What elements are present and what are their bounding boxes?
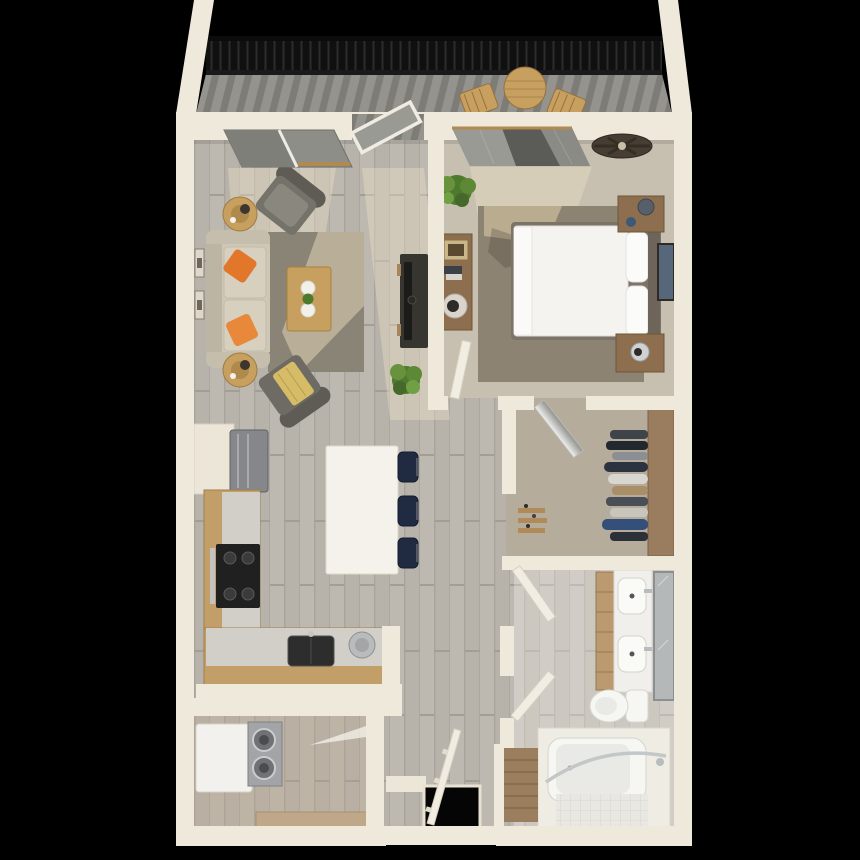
- toilet-seat: [595, 697, 617, 715]
- tub-shower: [538, 728, 670, 832]
- table-plant: [303, 294, 314, 305]
- shower-tile-floor: [556, 794, 648, 830]
- decor-bowl: [447, 300, 459, 312]
- bar-stools: [398, 452, 418, 568]
- closet-bathroom-wall: [502, 556, 674, 570]
- table-lamp: [240, 360, 250, 370]
- shoe-shelves: [518, 504, 547, 533]
- round-outdoor-table: [504, 67, 546, 109]
- console-wood-trim: [397, 324, 401, 336]
- dresser-art: [448, 244, 464, 256]
- bottom-wall-opening: [386, 845, 496, 860]
- sofa-back: [206, 244, 222, 352]
- left-exterior-wall: [176, 112, 194, 846]
- plate: [301, 303, 315, 317]
- bottom-exterior-wall: [176, 826, 692, 846]
- living-bedroom-wall: [428, 140, 444, 398]
- bathroom-west-wall: [500, 626, 514, 676]
- books: [444, 266, 462, 274]
- tv-stand: [408, 296, 416, 304]
- washer-door-glass: [259, 735, 269, 745]
- bedroom: [439, 140, 674, 398]
- dresser: [440, 234, 472, 330]
- kitchen-upper-cabinet: [194, 424, 234, 494]
- fan-light: [618, 142, 626, 150]
- nightstand: [618, 196, 664, 232]
- range-stove: [210, 544, 260, 608]
- shower-head: [656, 758, 664, 766]
- walk-in-closet: [506, 406, 674, 558]
- vanity-mirror: [654, 572, 674, 700]
- stairwell-curb: [386, 776, 426, 792]
- bar-stool: [398, 452, 418, 482]
- tv-console: [397, 254, 428, 348]
- dryer-door-glass: [259, 763, 269, 773]
- bedroom-south-wall: [498, 396, 534, 410]
- cup: [230, 373, 236, 379]
- bedroom-window: [452, 128, 590, 166]
- side-table-with-lamp: [223, 197, 257, 231]
- ceiling-fan: [592, 134, 652, 158]
- sink-drain: [630, 652, 635, 657]
- floor-plant: [390, 364, 422, 395]
- toilet: [590, 690, 648, 722]
- bar-stool: [398, 496, 418, 526]
- prep-sink-basin: [355, 638, 369, 652]
- duvet-fold: [514, 228, 532, 334]
- sink-faucet: [644, 589, 652, 593]
- sofa: [206, 230, 270, 368]
- bedroom-south-wall: [586, 396, 674, 410]
- sink-drain: [630, 594, 635, 599]
- washer-dryer-unit: [196, 722, 282, 792]
- console-wood-trim: [397, 264, 401, 276]
- nightstand: [616, 334, 664, 372]
- right-exterior-wall: [674, 112, 692, 846]
- floorplan-render: [0, 0, 860, 860]
- refrigerator: [230, 430, 268, 492]
- floorplan-stage: [0, 0, 860, 860]
- bedroom-wall-art: [658, 244, 674, 300]
- bar-stool: [398, 538, 418, 568]
- closet-west-wall: [502, 410, 516, 494]
- laundry-east-wall: [366, 698, 384, 846]
- books: [446, 274, 462, 280]
- bed-pillow: [626, 286, 648, 336]
- cup: [230, 217, 236, 223]
- toilet-tank: [626, 690, 648, 722]
- sink-faucet: [644, 647, 652, 651]
- kitchen-return-wall: [382, 626, 400, 704]
- balcony-railing: [206, 38, 662, 74]
- counter-sink: [288, 631, 334, 666]
- laundry: [194, 716, 368, 838]
- table-lamp: [240, 204, 250, 214]
- railing-bottom-rail: [206, 70, 662, 75]
- oven-handle: [210, 548, 215, 604]
- bedroom-south-wall: [428, 396, 448, 410]
- bathroom-west-wall: [500, 718, 514, 748]
- living-room-window: [224, 130, 352, 167]
- double-vanity: [596, 570, 674, 700]
- bed-pillow: [626, 232, 648, 282]
- carpeted-stairs: [504, 748, 538, 822]
- kitchen-island: [326, 446, 398, 574]
- sink-faucet: [308, 631, 314, 637]
- closet-shelf: [648, 406, 674, 556]
- stairwell-wall: [494, 744, 504, 826]
- plate: [301, 281, 315, 295]
- railing-top-rail: [206, 36, 662, 41]
- side-table-with-lamp: [223, 353, 257, 387]
- coffee-table: [287, 267, 331, 331]
